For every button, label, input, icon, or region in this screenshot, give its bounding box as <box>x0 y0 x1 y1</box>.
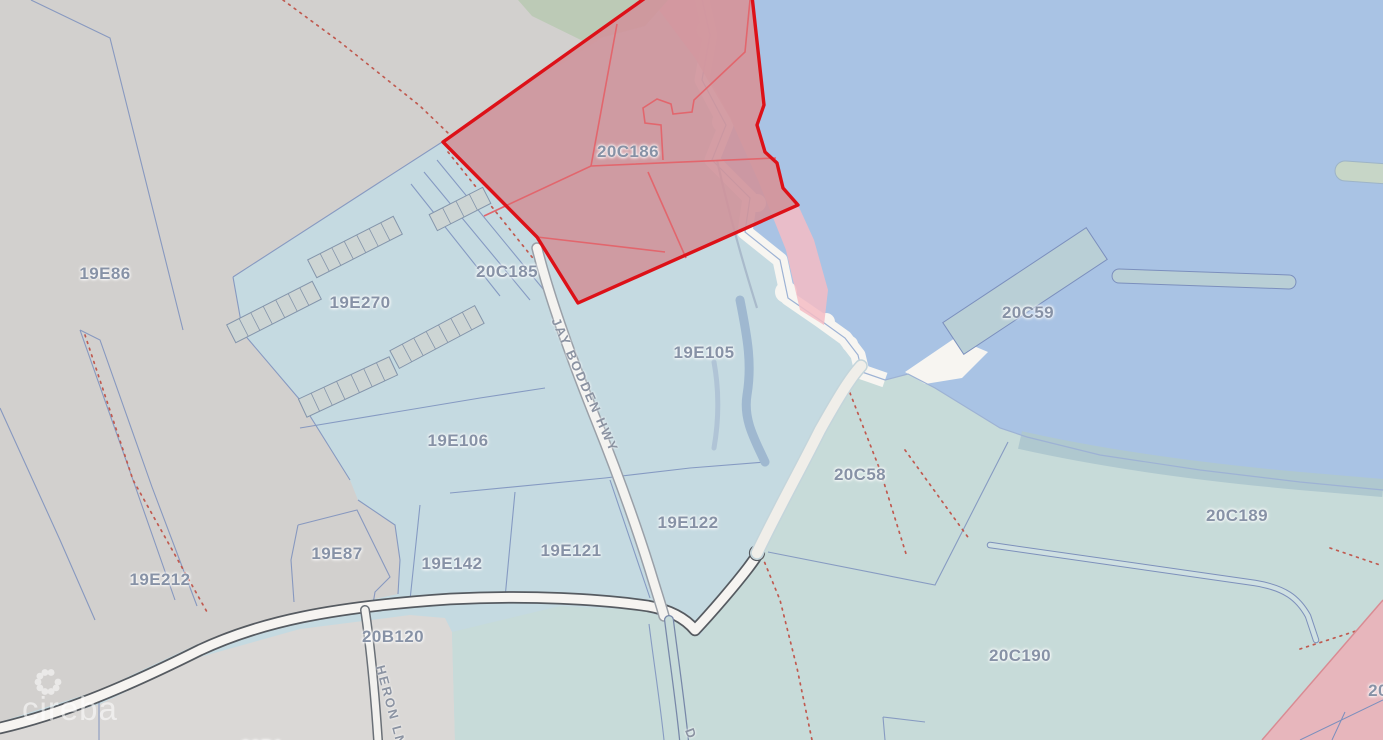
island <box>1334 160 1383 184</box>
map-viewport[interactable]: 19E8619E27020C18520C18619E10519E10619E12… <box>0 0 1383 740</box>
watermark-text: cireba <box>22 690 118 728</box>
map-canvas[interactable] <box>0 0 1383 740</box>
